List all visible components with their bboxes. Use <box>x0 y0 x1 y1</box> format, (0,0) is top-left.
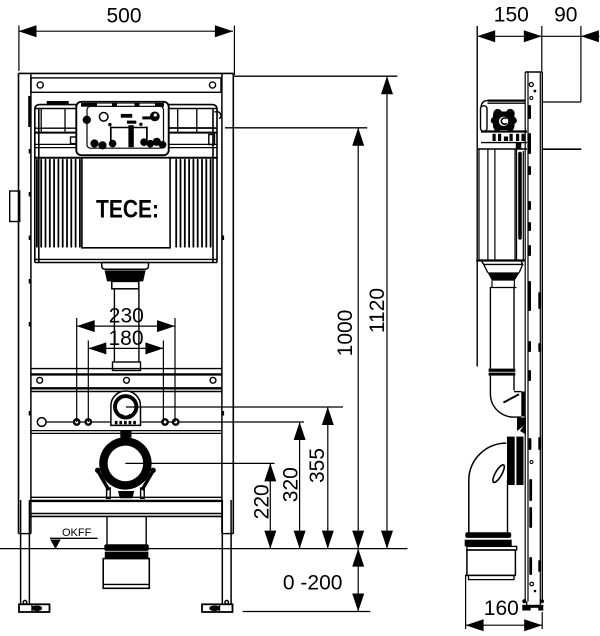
svg-text:90: 90 <box>554 4 577 27</box>
svg-text:150: 150 <box>494 4 529 27</box>
svg-text:TECE:: TECE: <box>96 195 159 223</box>
svg-text:355: 355 <box>306 448 329 483</box>
svg-text:180: 180 <box>108 327 143 350</box>
svg-text:230: 230 <box>109 304 144 327</box>
svg-text:OKFF: OKFF <box>62 527 92 539</box>
svg-text:320: 320 <box>280 467 303 502</box>
svg-text:500: 500 <box>106 5 141 28</box>
svg-text:0 -200: 0 -200 <box>283 572 343 595</box>
svg-text:1120: 1120 <box>366 288 389 333</box>
svg-text:160: 160 <box>484 597 519 620</box>
svg-text:1000: 1000 <box>334 310 357 357</box>
svg-text:220: 220 <box>250 484 273 519</box>
